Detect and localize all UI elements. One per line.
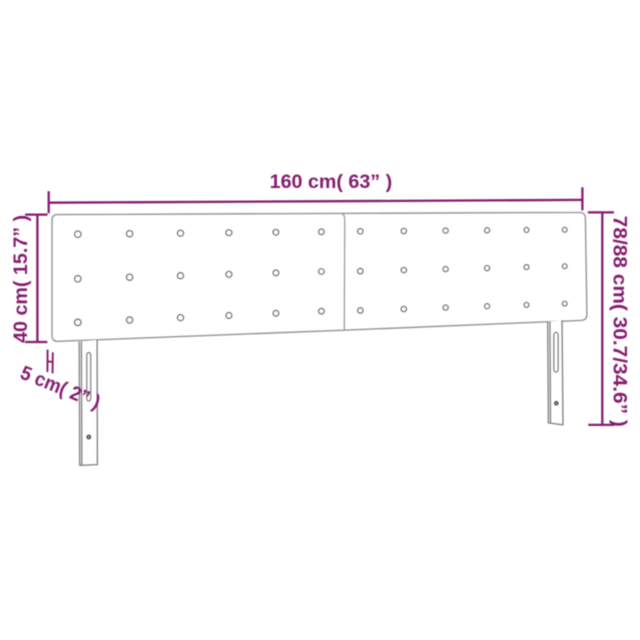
svg-text:78/88 cm( 30.7/34.6” ): 78/88 cm( 30.7/34.6” ) <box>608 216 630 427</box>
svg-text:160 cm( 63” ): 160 cm( 63” ) <box>270 171 393 193</box>
svg-text:40 cm( 15.7” ): 40 cm( 15.7” ) <box>10 215 32 343</box>
